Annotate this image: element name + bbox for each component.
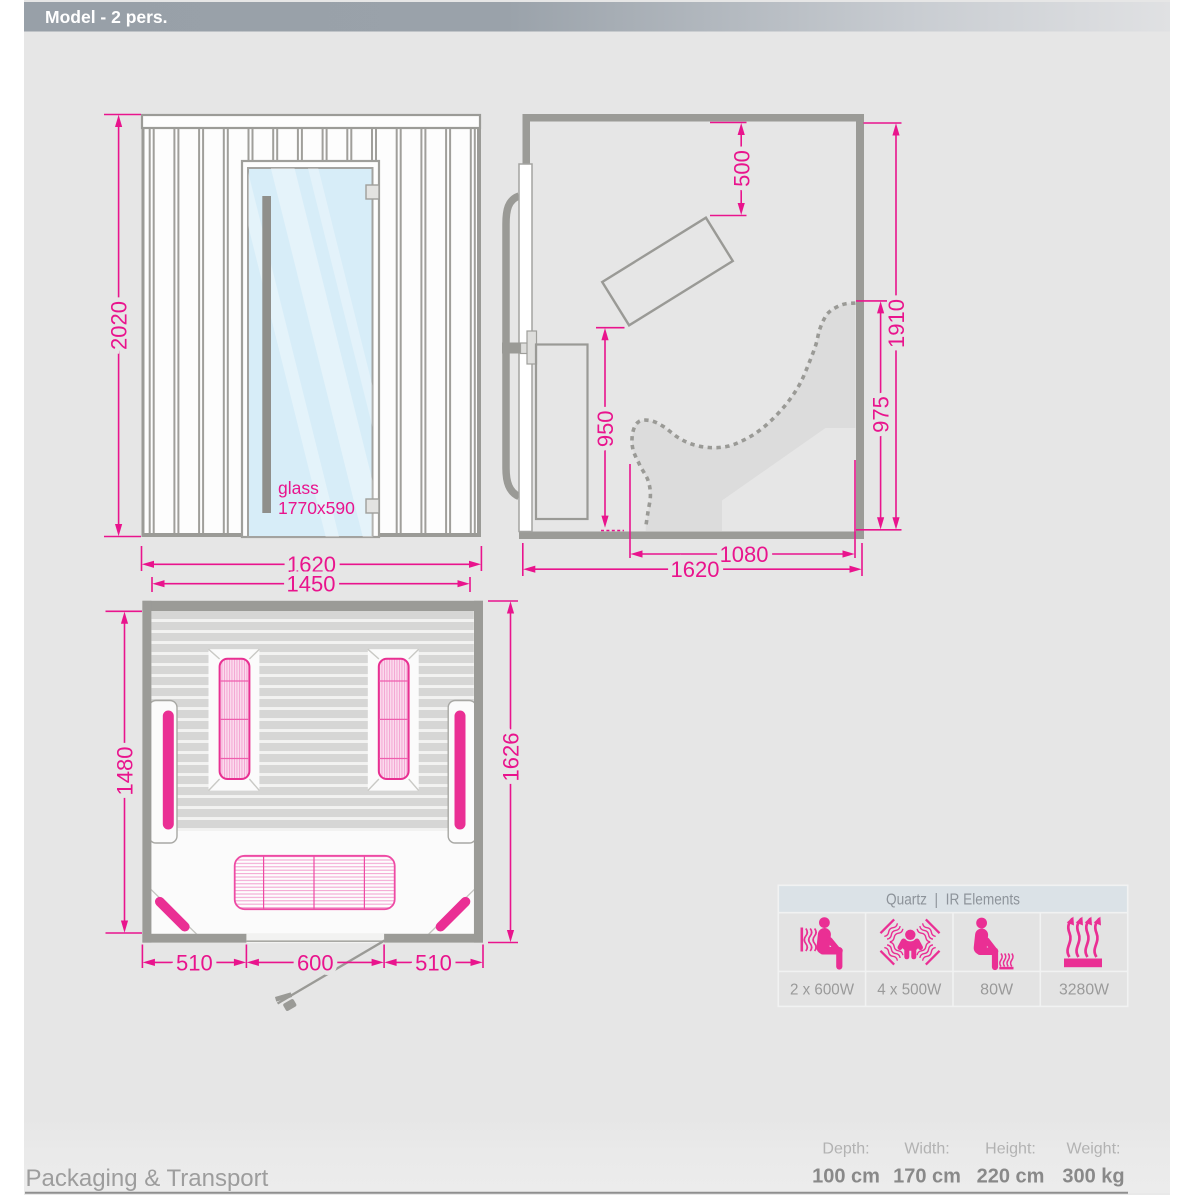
svg-text:510: 510	[415, 950, 452, 975]
svg-text:950: 950	[593, 410, 618, 447]
svg-text:220 cm: 220 cm	[977, 1166, 1045, 1188]
svg-text:Depth:: Depth:	[822, 1141, 869, 1158]
svg-text:170 cm: 170 cm	[893, 1166, 961, 1188]
svg-text:1080: 1080	[720, 542, 769, 567]
svg-text:1480: 1480	[113, 747, 138, 796]
svg-text:3280W: 3280W	[1059, 982, 1110, 999]
svg-text:Height:: Height:	[985, 1141, 1036, 1158]
svg-text:Quartz | IR Elements: Quartz | IR Elements	[886, 892, 1020, 909]
svg-text:1626: 1626	[499, 733, 524, 782]
svg-text:2020: 2020	[107, 301, 132, 350]
svg-text:1910: 1910	[884, 299, 909, 348]
svg-text:80W: 80W	[980, 982, 1014, 999]
svg-text:Width:: Width:	[904, 1141, 949, 1158]
svg-text:2 x 600W: 2 x 600W	[790, 982, 855, 999]
svg-text:100 cm: 100 cm	[812, 1166, 880, 1188]
svg-text:glass: glass	[278, 478, 319, 498]
svg-text:510: 510	[176, 950, 213, 975]
svg-text:Model - 2 pers.: Model - 2 pers.	[45, 7, 168, 27]
svg-text:1620: 1620	[671, 557, 720, 582]
svg-text:Packaging & Transport: Packaging & Transport	[26, 1165, 269, 1192]
svg-text:1450: 1450	[287, 572, 336, 597]
svg-text:4 x 500W: 4 x 500W	[877, 982, 942, 999]
svg-text:1770x590: 1770x590	[278, 498, 355, 518]
svg-text:300 kg: 300 kg	[1062, 1166, 1124, 1188]
svg-text:Weight:: Weight:	[1067, 1141, 1121, 1158]
svg-text:500: 500	[729, 150, 754, 187]
svg-text:975: 975	[869, 396, 894, 433]
svg-text:600: 600	[297, 950, 334, 975]
